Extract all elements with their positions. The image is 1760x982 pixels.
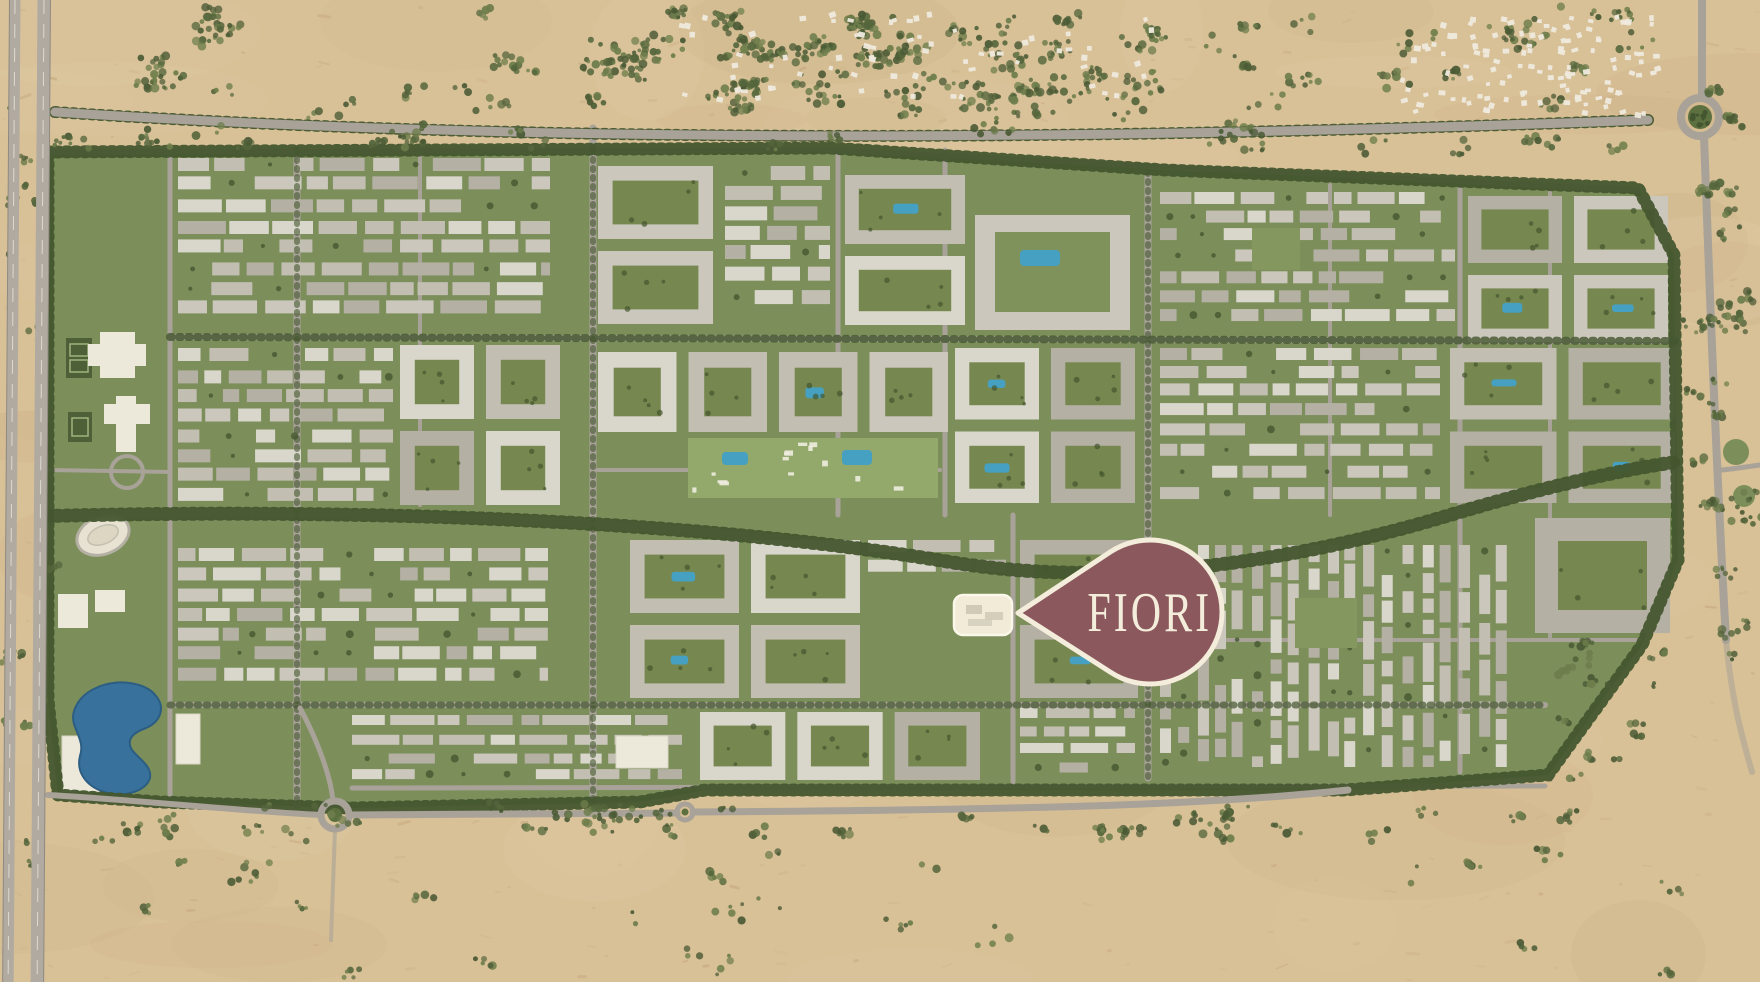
fiori-building[interactable] [954,595,1012,635]
marker-label: FIORI [1087,581,1212,643]
masterplan-map: FIORI [0,0,1760,982]
